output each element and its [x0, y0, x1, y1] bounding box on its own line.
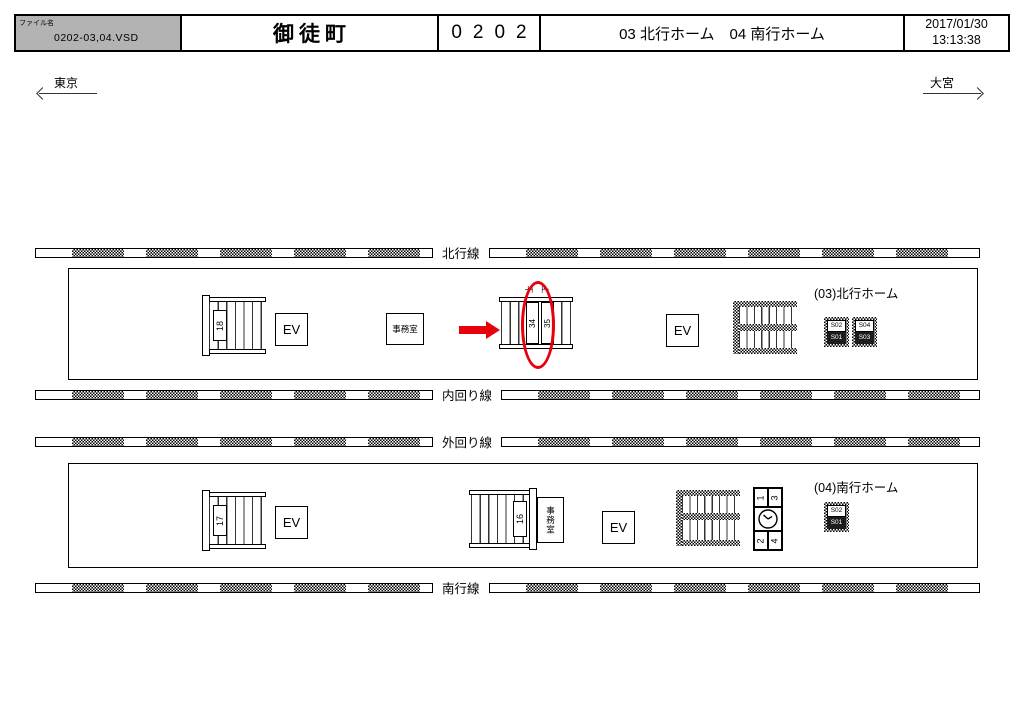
track-hatch-segment — [294, 438, 346, 446]
monitor-3: 3 — [768, 488, 782, 507]
track-hatch-segment — [368, 438, 420, 446]
file-name-value: 0202-03,04.VSD — [54, 32, 139, 44]
track-hatch-segment — [760, 391, 812, 399]
track-bar — [489, 248, 980, 258]
track-hatch-segment — [72, 391, 124, 399]
track-hatch-segment — [822, 249, 874, 257]
track-label: 内回り線 — [433, 385, 501, 404]
elevator-icon: EV — [666, 314, 699, 347]
monitor-clock-unit: 1 3 2 4 — [753, 487, 783, 551]
track-hatch-segment — [72, 249, 124, 257]
track-bar — [35, 437, 433, 447]
platform-info: 03 北行ホーム 04 南行ホーム — [541, 16, 905, 50]
track-outer-loop: 外回り線 — [35, 434, 980, 450]
track-hatch-segment — [146, 584, 198, 592]
track-hatch-segment — [220, 391, 272, 399]
track-hatch-segment — [294, 391, 346, 399]
stairs-number: 17 — [213, 505, 227, 536]
stairs-number: 16 — [513, 501, 527, 537]
track-hatch-segment — [908, 438, 960, 446]
sign-badge: S02 S01 — [824, 317, 849, 347]
title-block: ファイル名 0202-03,04.VSD 御徒町 0202 03 北行ホーム 0… — [14, 14, 1010, 52]
track-hatch-segment — [674, 584, 726, 592]
track-hatch-segment — [538, 391, 590, 399]
direction-omiya-label: 大宮 — [930, 74, 954, 91]
sign-s01: S01 — [827, 332, 846, 344]
stairs-16-icon: 16 — [469, 490, 537, 548]
track-label: 南行線 — [433, 578, 489, 597]
arrow-right-icon — [971, 87, 984, 100]
station-layout-diagram: ファイル名 0202-03,04.VSD 御徒町 0202 03 北行ホーム 0… — [0, 0, 1024, 724]
platform-south-label: (04)南行ホーム — [814, 477, 898, 496]
monitor-1: 1 — [754, 488, 768, 507]
track-hatch-segment — [294, 584, 346, 592]
track-bar — [35, 390, 433, 400]
station-name: 御徒町 — [182, 16, 439, 50]
track-hatch-segment — [294, 249, 346, 257]
clock-icon — [754, 507, 782, 531]
track-hatch-segment — [538, 438, 590, 446]
office-room: 事務室 — [386, 313, 424, 345]
track-hatch-segment — [72, 584, 124, 592]
track-hatch-segment — [908, 391, 960, 399]
sign-s01: S01 — [827, 517, 846, 529]
wide-stairs-icon — [676, 490, 740, 546]
stairs-number: 18 — [213, 310, 227, 341]
red-highlight-ellipse — [521, 281, 555, 369]
sign-s02: S02 — [827, 320, 846, 332]
track-bar — [501, 390, 980, 400]
date-text: 2017/01/30 — [925, 17, 988, 33]
track-hatch-segment — [220, 249, 272, 257]
monitor-2: 2 — [754, 531, 768, 550]
track-label: 北行線 — [433, 243, 489, 262]
track-label: 外回り線 — [433, 432, 501, 451]
track-hatch-segment — [822, 584, 874, 592]
track-bar — [489, 583, 980, 593]
track-hatch-segment — [600, 249, 652, 257]
direction-omiya: 大宮 — [920, 74, 984, 100]
track-hatch-segment — [686, 391, 738, 399]
track-hatch-segment — [526, 584, 578, 592]
track-hatch-segment — [896, 249, 948, 257]
track-hatch-segment — [760, 438, 812, 446]
track-northbound: 北行線 — [35, 245, 980, 261]
track-inner-loop: 内回り線 — [35, 387, 980, 403]
track-bar — [35, 248, 433, 258]
track-hatch-segment — [612, 438, 664, 446]
track-bar — [501, 437, 980, 447]
track-hatch-segment — [612, 391, 664, 399]
platform-north-label: (03)北行ホーム — [814, 283, 898, 302]
elevator-icon: EV — [275, 506, 308, 539]
red-arrow-annotation — [459, 321, 501, 339]
station-code: 0202 — [439, 16, 541, 50]
time-text: 13:13:38 — [932, 33, 981, 49]
sign-badge: S04 S03 — [852, 317, 877, 347]
file-name-cell: ファイル名 0202-03,04.VSD — [16, 16, 182, 50]
track-hatch-segment — [600, 584, 652, 592]
file-name-label: ファイル名 — [19, 18, 54, 28]
track-hatch-segment — [748, 584, 800, 592]
office-room: 事務室 — [537, 497, 564, 543]
elevator-icon: EV — [275, 313, 308, 346]
track-hatch-segment — [368, 584, 420, 592]
sign-s04: S04 — [855, 320, 874, 332]
stairs-18-icon: 18 — [202, 297, 266, 354]
track-hatch-segment — [220, 584, 272, 592]
platform-north: 18 EV 事務室 上 下 34 35 EV (03)北行ホーム — [68, 268, 978, 380]
track-hatch-segment — [72, 438, 124, 446]
track-hatch-segment — [686, 438, 738, 446]
direction-tokyo-label: 東京 — [54, 74, 78, 91]
sign-badge: S02 S01 — [824, 502, 849, 532]
track-hatch-segment — [220, 438, 272, 446]
sign-s03: S03 — [855, 332, 874, 344]
elevator-icon: EV — [602, 511, 635, 544]
track-hatch-segment — [146, 391, 198, 399]
datetime-cell: 2017/01/30 13:13:38 — [905, 16, 1008, 50]
track-hatch-segment — [896, 584, 948, 592]
monitor-4: 4 — [768, 531, 782, 550]
track-hatch-segment — [146, 438, 198, 446]
track-southbound: 南行線 — [35, 580, 980, 596]
track-hatch-segment — [526, 249, 578, 257]
track-hatch-segment — [146, 249, 198, 257]
stairs-17-icon: 17 — [202, 492, 266, 549]
track-hatch-segment — [674, 249, 726, 257]
track-hatch-segment — [834, 391, 886, 399]
track-hatch-segment — [368, 249, 420, 257]
track-hatch-segment — [748, 249, 800, 257]
sign-s02: S02 — [827, 505, 846, 517]
track-hatch-segment — [368, 391, 420, 399]
track-bar — [35, 583, 433, 593]
wide-stairs-icon — [733, 301, 797, 354]
direction-tokyo: 東京 — [36, 74, 100, 100]
track-hatch-segment — [834, 438, 886, 446]
platform-south: 17 EV 16 事務室 EV 1 3 — [68, 463, 978, 568]
arrow-left-icon — [36, 87, 49, 100]
